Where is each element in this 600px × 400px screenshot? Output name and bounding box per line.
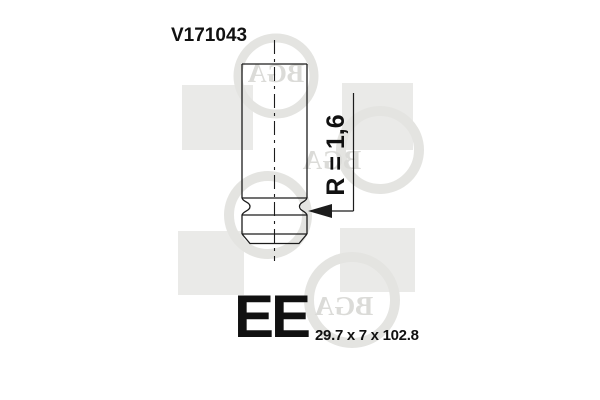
part-number: V171043 — [171, 25, 247, 47]
watermark-brand-text: BGA — [314, 291, 373, 321]
catalog-product-image: BGA BGA BGA R = 1,6 V171043 EE 29.7 x 7 … — [0, 0, 600, 400]
valve-type-code: EE — [234, 287, 308, 347]
part-dimensions: 29.7 x 7 x 102.8 — [315, 327, 419, 344]
radius-annotation: R = 1,6 — [322, 114, 350, 195]
